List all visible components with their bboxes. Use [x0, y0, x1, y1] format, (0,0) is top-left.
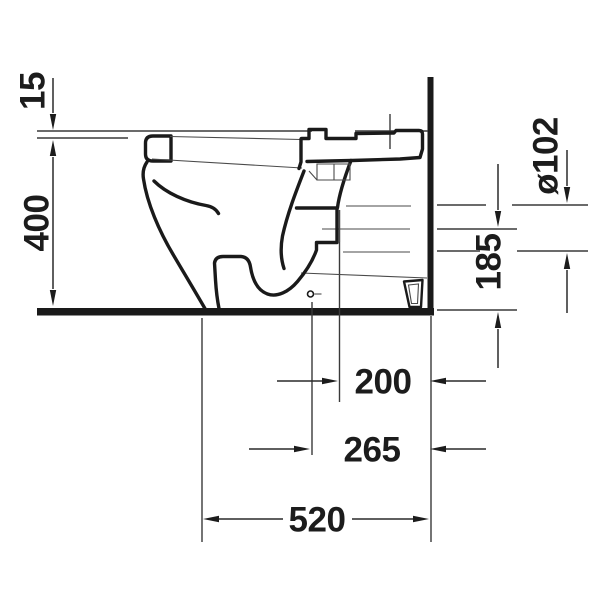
dimension-seat-thickness: 15 [14, 72, 57, 130]
dimension-outlet-diameter: ø102 [527, 117, 571, 313]
dimension-setout-265: 265 [249, 431, 486, 470]
dimension-label-400: 400 [18, 195, 57, 252]
wall-line [428, 77, 434, 309]
lid-top-line [170, 137, 301, 140]
floor-outlet-opening [404, 280, 423, 307]
dimension-outlet-centre-height: 185 [470, 164, 509, 368]
dimension-label-265: 265 [344, 431, 401, 470]
bowl-rear-outline [338, 161, 352, 208]
seat-lid-front-edge [146, 136, 172, 161]
dimension-rim-height: 400 [18, 140, 57, 306]
dimension-label-185: 185 [470, 234, 509, 291]
base-rear-edge-line [301, 273, 427, 278]
trap-sump-outline [215, 208, 338, 309]
dimension-label-15: 15 [14, 72, 53, 110]
dimension-setout-200: 200 [277, 363, 486, 402]
dimension-label-520: 520 [289, 501, 346, 540]
bowl-front-outline [143, 162, 205, 310]
seat-line [152, 159, 302, 168]
dimension-label-200: 200 [355, 363, 412, 402]
trap-back-curve [281, 171, 304, 269]
drain-centre-marker [308, 291, 322, 297]
bowl-inner-rim-curve [154, 181, 219, 214]
extension-lines [37, 114, 588, 542]
floor-line [37, 308, 434, 316]
toilet-side-profile [143, 130, 422, 310]
cistern-platform-outline [299, 130, 423, 169]
technical-drawing-canvas: 15 400 ø102 185 200 265 [0, 0, 600, 600]
toilet-dimension-drawing: 15 400 ø102 185 200 265 [0, 0, 600, 600]
dimension-depth: 520 [203, 501, 429, 540]
dimension-label-diameter: ø102 [527, 117, 566, 195]
